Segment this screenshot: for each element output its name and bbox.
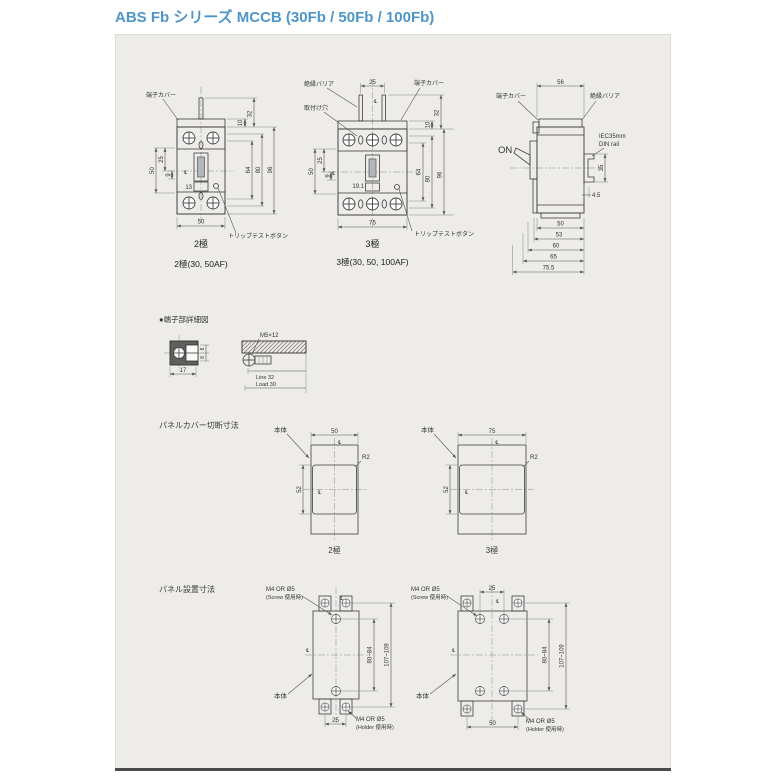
trip-test-button-label: トリップテストボタン bbox=[228, 232, 288, 240]
centerline-mark: ℄ bbox=[318, 490, 322, 496]
panel-install-2pole: ℄ ℄ M4 OR Ø5 (Screw 使用時) 80~84 107~109 2… bbox=[266, 587, 395, 731]
dim-left-25: 25 bbox=[318, 157, 324, 164]
caption-2pole: 2極 bbox=[194, 238, 208, 249]
panel-cut-section: パネルカバー切断寸法 50 ℄ 52 ℄ R2 本体 2極 bbox=[156, 418, 576, 568]
body-label: 本体 bbox=[416, 691, 430, 700]
trip-test-button bbox=[214, 184, 219, 189]
dim-96: 96 bbox=[438, 171, 444, 178]
dim-17: 17 bbox=[180, 368, 187, 374]
terminal-detail-right: M5×12 Line 32 Load 30 bbox=[242, 333, 306, 393]
centerline-mark: ℄ bbox=[465, 490, 469, 496]
mounting-hole bbox=[359, 136, 363, 144]
front-view-2pole-drawing: 10 32 64 80 96 50 25 9 ℄ 13 bbox=[144, 81, 304, 291]
dim-8-top: 8 bbox=[200, 347, 206, 350]
centerline-mark: ℄ bbox=[306, 648, 310, 654]
dim-80: 80 bbox=[256, 166, 262, 173]
dim-left-50: 50 bbox=[309, 168, 315, 175]
screw-note-label: (Screw 使用時) bbox=[266, 593, 303, 601]
mounting-hole bbox=[359, 200, 363, 208]
radius-label: R2 bbox=[530, 455, 538, 461]
insulation-barrier-label: 絶縁バリア bbox=[304, 80, 334, 88]
dim-53: 53 bbox=[556, 233, 563, 239]
panel-cut-3pole: 75 ℄ 52 ℄ R2 本体 3極 bbox=[421, 425, 538, 555]
dim-rail-35: 35 bbox=[599, 164, 605, 171]
dim-left-9: 9 bbox=[326, 174, 332, 178]
dim-foot-pitch-107-109: 107~109 bbox=[385, 643, 391, 667]
dimensions-3p: 25 ℄ 10 32 64 80 96 bbox=[309, 80, 454, 230]
body-label: 本体 bbox=[421, 425, 435, 434]
dim-cut-width-50: 50 bbox=[331, 429, 338, 435]
din-rail-label-line1: IEC35mm bbox=[599, 134, 626, 140]
callouts-side: 端子カバー 絶縁バリア ON IEC35mm DIN rail bbox=[496, 92, 626, 156]
terminal-detail-left: 17 8 8 bbox=[164, 335, 209, 377]
holder-note-label: (Holder 使用時) bbox=[356, 723, 394, 731]
screw-spec-label: M4 OR Ø5 bbox=[266, 587, 295, 593]
dim-64: 64 bbox=[417, 168, 423, 175]
terminal-detail-drawing: ●端子部詳細図 17 8 8 bbox=[156, 313, 326, 408]
terminal-cover-label: 端子カバー bbox=[496, 92, 526, 100]
dim-60: 60 bbox=[553, 244, 560, 250]
callouts-2p: 端子カバー トリップテストボタン bbox=[146, 91, 288, 240]
dim-cut-height-52: 52 bbox=[444, 486, 450, 493]
centerline-mark: ℄ bbox=[496, 599, 500, 605]
screw-spec-label: M5×12 bbox=[260, 333, 279, 339]
holder-spec-label: M4 OR Ø5 bbox=[526, 719, 555, 725]
mounting-hole-label: 取付け穴 bbox=[304, 104, 328, 112]
breaker-side-profile bbox=[514, 119, 594, 218]
drawing-panel: 10 32 64 80 96 50 25 9 ℄ 13 bbox=[115, 34, 671, 771]
dim-cut-height-52: 52 bbox=[297, 486, 303, 493]
dim-line-32: Line 32 bbox=[256, 375, 274, 381]
dim-width-75: 75 bbox=[369, 221, 376, 227]
caption-3pole: 3極 bbox=[365, 238, 379, 249]
holder-spec-label: M4 OR Ø5 bbox=[356, 717, 385, 723]
caption-cut-2pole: 2極 bbox=[328, 545, 340, 555]
callouts-3p: 絶縁バリア 取付け穴 端子カバー トリップテストボタン bbox=[304, 79, 474, 238]
toggle-handle bbox=[514, 148, 530, 165]
side-view-drawing: 56 35 4.5 50 53 60 65 75.5 bbox=[486, 77, 666, 291]
subcaption-2pole: 2極(30, 50AF) bbox=[174, 259, 228, 269]
dim-offset-4-5: 4.5 bbox=[592, 193, 601, 199]
panel-install-section: パネル設置寸法 ℄ ℄ M4 OR Ø5 (Screw 使用時) 80~84 bbox=[156, 581, 596, 766]
panel-cut-2pole: 50 ℄ 52 ℄ R2 本体 2極 bbox=[274, 425, 370, 555]
holder-note-label: (Holder 使用時) bbox=[526, 725, 564, 733]
dim-hole-pitch-80-84: 80~84 bbox=[543, 646, 549, 664]
dim-handle-13: 13 bbox=[185, 185, 192, 191]
dim-hole-pitch-80-84: 80~84 bbox=[368, 646, 374, 664]
dim-pole-pitch-25: 25 bbox=[369, 80, 376, 86]
terminal-detail-title: ●端子部詳細図 bbox=[159, 314, 209, 324]
dim-64: 64 bbox=[246, 166, 252, 173]
dim-foot-pitch-50: 50 bbox=[489, 721, 496, 727]
dim-top-height: 32 bbox=[248, 110, 254, 117]
subcaption-3pole: 3極(30, 50, 100AF) bbox=[336, 257, 408, 267]
terminal-cover-label: 端子カバー bbox=[414, 79, 444, 87]
dim-65: 65 bbox=[550, 255, 557, 261]
dim-96: 96 bbox=[268, 166, 274, 173]
dim-top-height: 32 bbox=[435, 109, 441, 116]
terminal-cover-label: 端子カバー bbox=[146, 91, 176, 99]
front-view-3pole-drawing: 25 ℄ 10 32 64 80 96 bbox=[302, 75, 482, 291]
dim-load-30: Load 30 bbox=[256, 382, 276, 388]
dim-left-50: 50 bbox=[150, 167, 156, 174]
screw-spec-label: M4 OR Ø5 bbox=[411, 587, 440, 593]
centerline-mark: ℄ bbox=[452, 648, 456, 654]
dim-8-bottom: 8 bbox=[200, 356, 206, 359]
panel-install-3pole: 25 ℄ ℄ M4 OR Ø5 (Screw 使用時) 80~84 107~10… bbox=[411, 586, 570, 733]
dim-width-50: 50 bbox=[198, 220, 205, 226]
dim-handle-19: 19.1 bbox=[352, 184, 364, 190]
dim-80: 80 bbox=[426, 175, 432, 182]
centerlines bbox=[168, 87, 234, 221]
dim-cut-width-75: 75 bbox=[489, 429, 496, 435]
dim-hole-pitch-25: 25 bbox=[489, 586, 496, 592]
radius-label: R2 bbox=[362, 455, 370, 461]
body-label: 本体 bbox=[274, 425, 288, 434]
on-label: ON bbox=[498, 145, 512, 156]
page-title: ABS Fb シリーズ MCCB (30Fb / 50Fb / 100Fb) bbox=[115, 6, 434, 27]
dim-75-5: 75.5 bbox=[543, 266, 555, 272]
dim-foot-pitch-25: 25 bbox=[332, 718, 339, 724]
body-label: 本体 bbox=[274, 691, 288, 700]
screw-note-label: (Screw 使用時) bbox=[411, 593, 448, 601]
dim-foot-pitch-107-109: 107~109 bbox=[560, 644, 566, 668]
dim-cover-height: 10 bbox=[238, 119, 244, 126]
dim-left-25: 25 bbox=[159, 156, 165, 163]
mounting-hole bbox=[382, 200, 386, 208]
dim-cover-height: 10 bbox=[426, 121, 432, 128]
dim-left-9: 9 bbox=[166, 173, 172, 177]
dim-depth-56: 56 bbox=[557, 80, 564, 86]
trip-test-button-label: トリップテストボタン bbox=[414, 230, 474, 238]
panel-bottom-rule bbox=[115, 768, 671, 771]
caption-cut-3pole: 3極 bbox=[486, 545, 498, 555]
centerline-mark: ℄ bbox=[374, 99, 378, 105]
panel-install-title: パネル設置寸法 bbox=[159, 584, 215, 594]
din-rail-label-line2: DIN rail bbox=[599, 142, 619, 148]
panel-cut-title: パネルカバー切断寸法 bbox=[159, 420, 239, 430]
catalog-page: { "title": "ABS Fb シリーズ MCCB (30Fb / 50F… bbox=[0, 0, 783, 783]
trip-test-button bbox=[395, 185, 400, 190]
dim-50: 50 bbox=[557, 222, 564, 228]
insulation-barrier-label: 絶縁バリア bbox=[590, 92, 620, 100]
mounting-hole bbox=[382, 136, 386, 144]
